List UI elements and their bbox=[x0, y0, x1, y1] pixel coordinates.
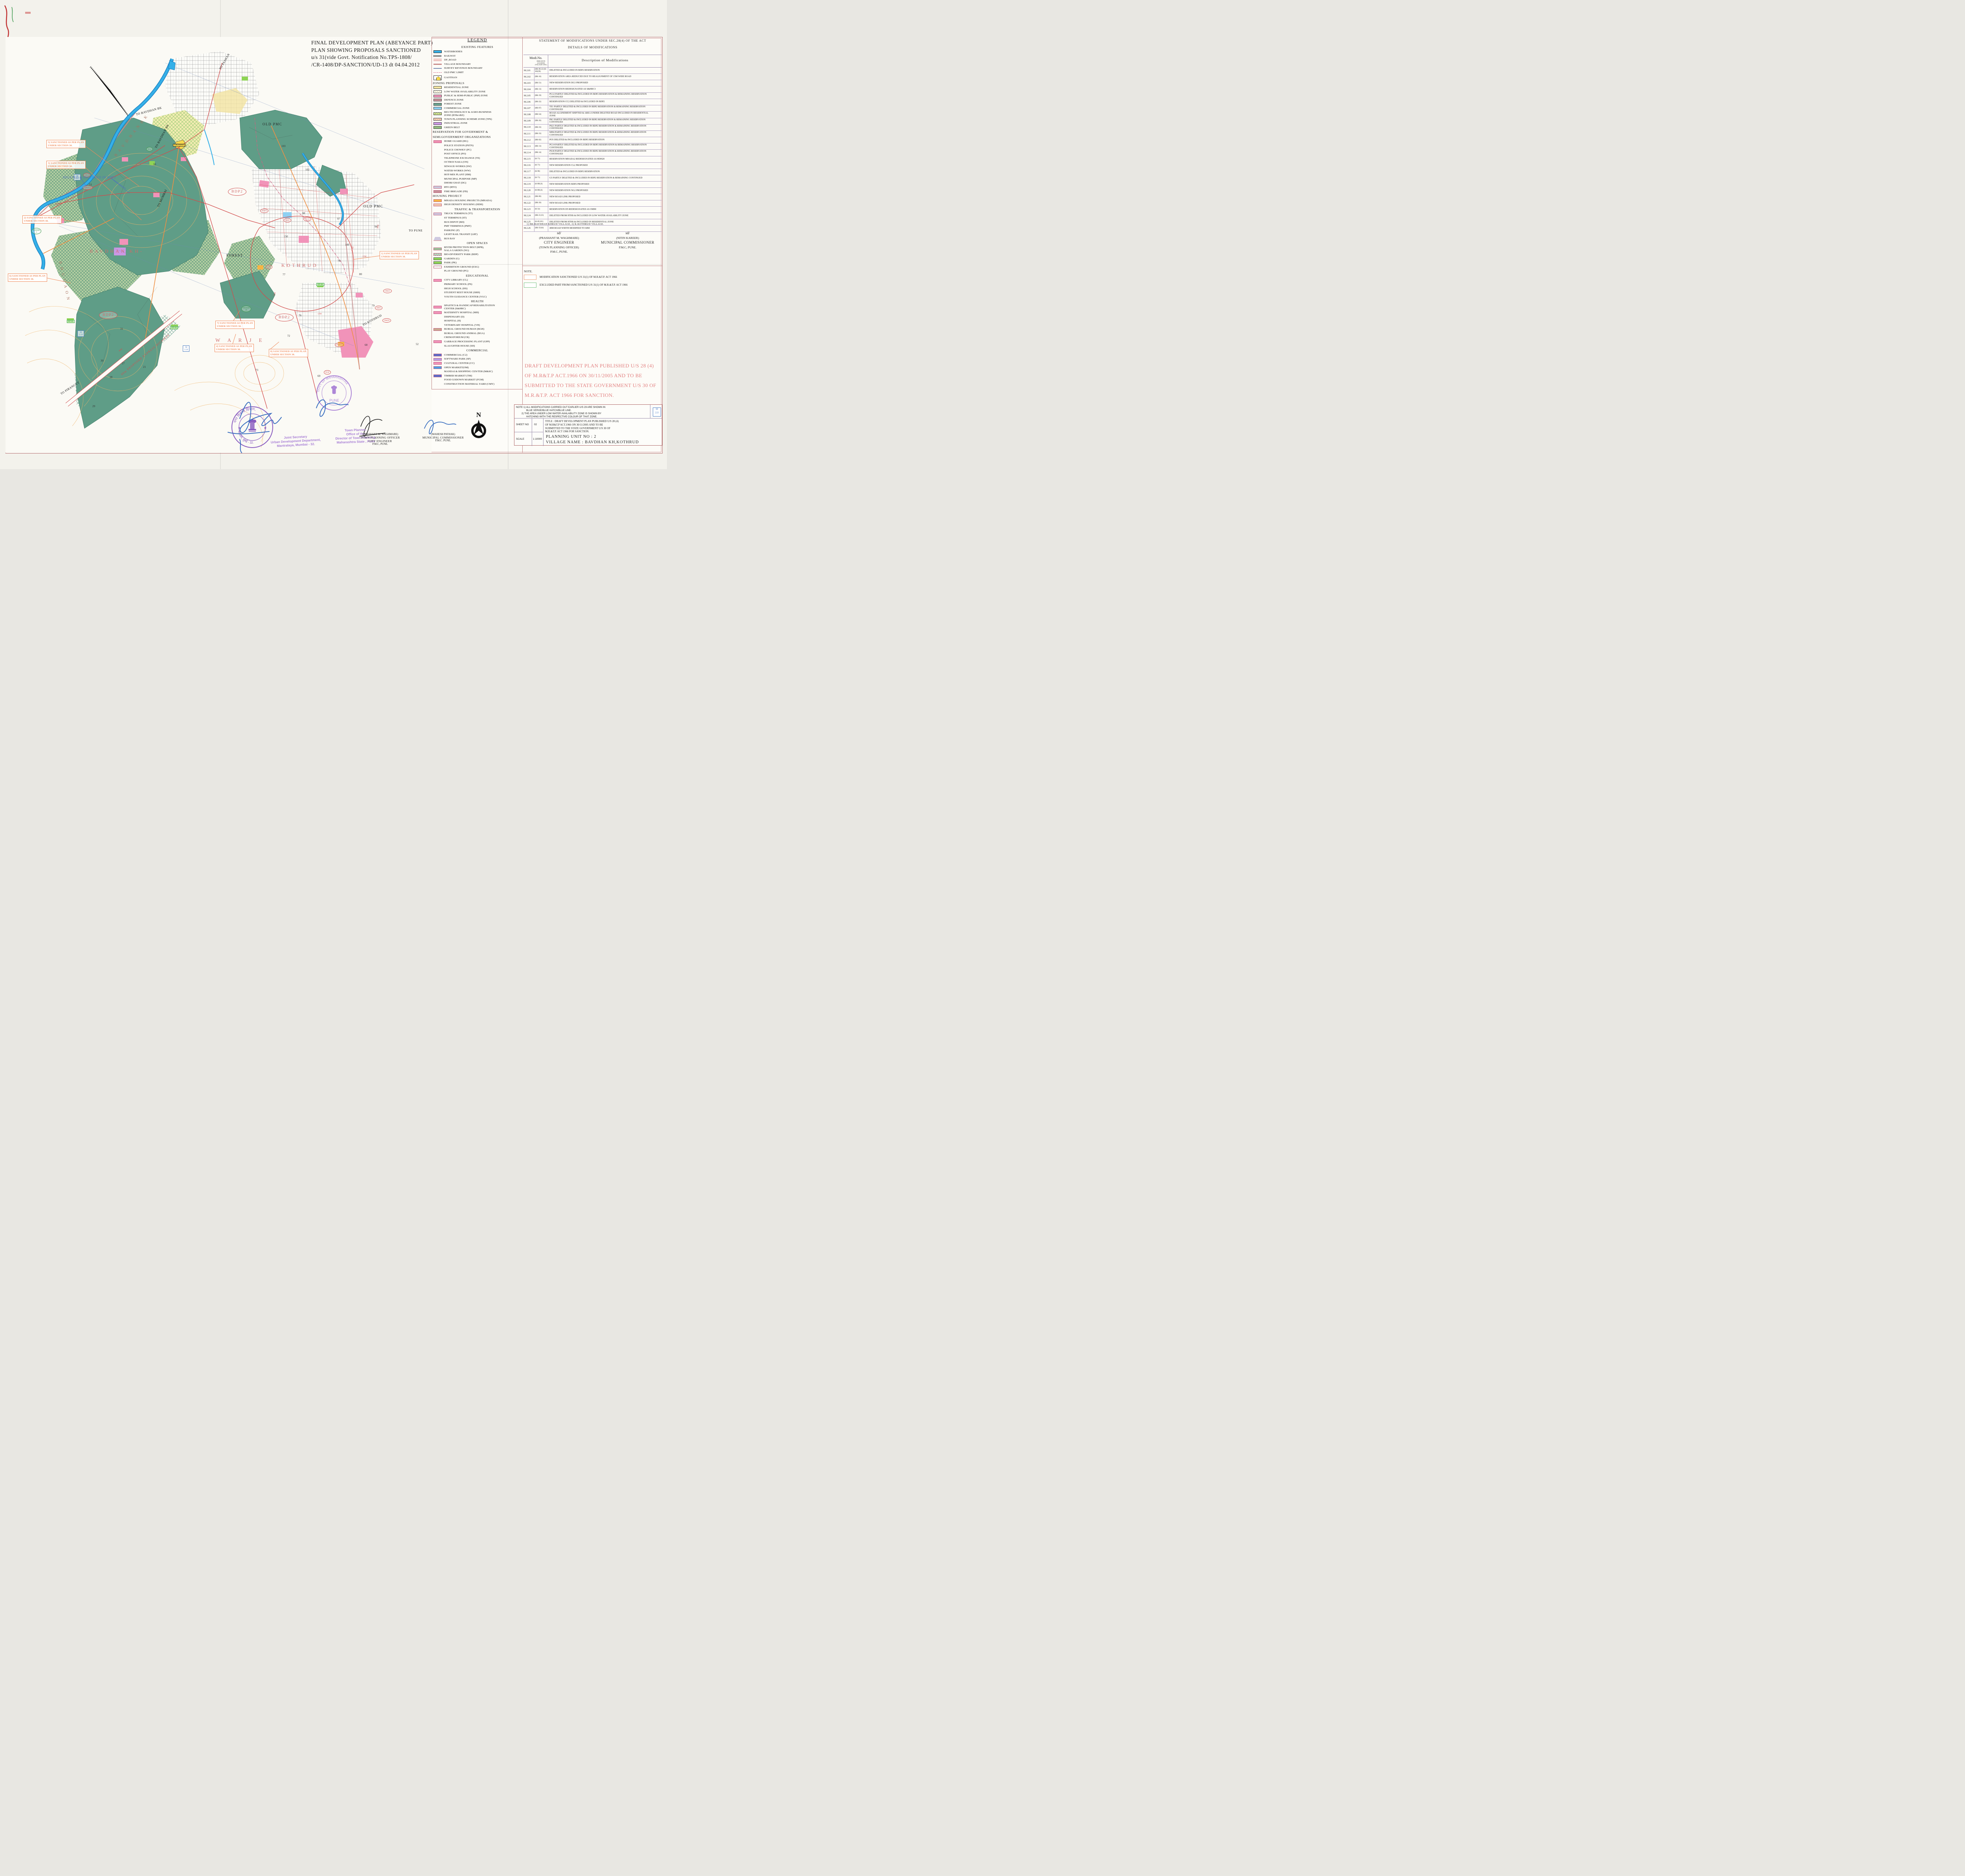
legend-swatch bbox=[433, 204, 442, 206]
modification-no: M.2.10 bbox=[523, 126, 534, 128]
legend-label: TOWN PLANNING SCHEME ZONE (TPS) bbox=[444, 118, 492, 121]
green-code: PH/HDH20 bbox=[241, 306, 251, 312]
legend-label: HEALTH bbox=[471, 300, 483, 303]
modification-row: M.2.15 (K-71) RESERVATION MHADA2 REDESIG… bbox=[523, 156, 662, 163]
modification-location: (BK-19) bbox=[534, 93, 548, 99]
legend-row: GREEN BELT bbox=[433, 125, 522, 130]
map-label: TO PUNE bbox=[409, 229, 422, 232]
legend-row: VILLAGE BOUNDARY bbox=[433, 62, 522, 66]
plot-number: 103 bbox=[281, 145, 286, 148]
legend-row: SPASTICS & HANDICAP REHABILITATION CENTE… bbox=[433, 304, 522, 310]
legend-row: DISPENSARY (D) bbox=[433, 315, 522, 319]
modification-no: M.2.13 bbox=[523, 145, 534, 148]
legend-row: TOWN PLANNING SCHEME ZONE (TPS) bbox=[433, 117, 522, 121]
legend-label: RIVER PROTECTION BELT (RPB), bbox=[444, 246, 484, 249]
modification-location: (K-71) bbox=[534, 175, 548, 181]
modification-description: 40M ROAD WIDTH MODIFIED TO 60M bbox=[548, 227, 662, 230]
legend-label: MUNICIPAL PURPOSE (MP) bbox=[444, 178, 477, 181]
legend-label: FOREST ZONE bbox=[444, 103, 461, 106]
legend-label-2: NALA GARDEN (NG) bbox=[444, 249, 484, 252]
legend-title: LEGEND bbox=[433, 38, 522, 45]
plot-number: 97 bbox=[337, 217, 340, 220]
modification-marker: M2.19 bbox=[77, 330, 84, 337]
plot-number: 27 bbox=[122, 362, 125, 365]
legend-label: BIO-DIVERSITY PARK (BDP) bbox=[444, 253, 478, 256]
legend-row: HIGH SCHOOL (HS) bbox=[433, 286, 522, 291]
modifications-subheading: DETAILS OF MODIFICATIONS bbox=[523, 46, 662, 49]
modification-no: M.2.24 bbox=[523, 215, 534, 217]
note-item: EXCLUDED PART FROM SANCTIONED U/S 31(1) … bbox=[540, 284, 628, 286]
legend-label: DISPENSARY (D) bbox=[444, 316, 465, 319]
legend-row: MUNICIPAL PURPOSE (MP) bbox=[433, 177, 522, 181]
legend-label: PRIMARY SCHOOL (PS) bbox=[444, 283, 472, 286]
legend-label: MANDAI & SHOPPING CEN/TER (M&SC) bbox=[444, 370, 493, 373]
modification-location: (K-96) bbox=[534, 169, 548, 175]
legend-swatch bbox=[433, 86, 442, 89]
planning-unit: PLANNING UNIT NO : 2 bbox=[546, 435, 596, 439]
modification-location: (K-54) bbox=[534, 207, 548, 213]
legend-row: WATERBODIES bbox=[433, 50, 522, 54]
legend-row: PUBLIC & SEMI-PUBLIC (PSP) ZONE bbox=[433, 94, 522, 98]
legend-label: RAILWAY bbox=[444, 55, 456, 58]
legend-label: FIRE BRIGADE (FB) bbox=[444, 190, 468, 193]
modification-no: M.2.05 bbox=[523, 95, 534, 97]
draft-line: SUBMITTED TO THE STATE GOVERNMENT U/S 30… bbox=[525, 380, 662, 390]
modification-row: M.2.21 (BK-06) NEW ROAD LINK PROPOSED bbox=[523, 194, 662, 200]
legend-swatch bbox=[433, 140, 442, 143]
map-label: OLD PMC bbox=[364, 204, 383, 208]
excluded-part-swatch bbox=[524, 283, 536, 288]
modification-location: (K-BK,K) bbox=[534, 182, 548, 187]
legend-label: COMMERCIAL ZONE bbox=[444, 107, 470, 110]
legend-label: SURVEY REVENUE BOUNDARY bbox=[444, 67, 483, 70]
sanction-callout: 4) SANCTIONED AS PER PLANUNDER SECTION 3… bbox=[215, 344, 254, 352]
legend-row: POST OFFICE (PO) bbox=[433, 152, 522, 156]
modification-row: M.2.04 (BK-13) RESERVATION REDESIGNATED … bbox=[523, 86, 662, 93]
legend-label: CREMATORIUM (CR) bbox=[444, 336, 469, 339]
legend-row: RIVER PROTECTION BELT (RPB), NALA GARDEN… bbox=[433, 246, 522, 252]
reservation-code: PMT2 bbox=[335, 343, 343, 347]
legend-label: LIGHT RAIL TRANSIT (LRT) bbox=[444, 233, 477, 236]
modification-location: (BK-16) bbox=[534, 74, 548, 80]
reservation-code: MP6 bbox=[284, 218, 291, 222]
modification-description: NEW RESERVATION DG3 PROPOSED bbox=[548, 81, 662, 85]
legend-swatch bbox=[433, 253, 442, 256]
handwritten-signatures bbox=[204, 389, 472, 456]
reservation-code: OM21 bbox=[383, 289, 392, 293]
legend-label: PARKING (P) bbox=[444, 229, 459, 232]
modification-row: M.2.01 (BK-08,12) (K-100,99) DELETED & I… bbox=[523, 68, 662, 74]
reservation-code: OM20 bbox=[382, 318, 391, 323]
modification-row: M.2.17 (K-96) DELETED & INCLUDED IN BDP2… bbox=[523, 169, 662, 175]
legend-row: LOW WATER AVAILABILITY ZONE bbox=[433, 90, 522, 94]
legend-swatch bbox=[433, 75, 442, 80]
modification-description: NEW RESERVATION NG2 PROPOSED bbox=[548, 189, 662, 193]
legend-label: OPEN MARKET(OM) bbox=[444, 366, 469, 369]
legend-label: MATERNITY HOSPITAL (MH) bbox=[444, 311, 479, 314]
reservation-code: WW1 bbox=[260, 209, 268, 213]
green-code: NG2 bbox=[146, 147, 153, 151]
sheet-no-label: SHEET NO bbox=[516, 423, 529, 426]
modification-description: NEW RESERVATION CL2 PROPOSED bbox=[548, 164, 662, 167]
legend-label: CITY LIBRARY (CL) bbox=[444, 279, 468, 282]
legend-swatch bbox=[433, 55, 442, 57]
modification-description: TE1 PARTLY DELETED & INCLUDED IN BDP2 RE… bbox=[548, 105, 662, 111]
legend-label: LOW WATER AVAILABILITY ZONE bbox=[444, 90, 485, 94]
modification-row: M.2.03 (BK-51) NEW RESERVATION DG3 PROPO… bbox=[523, 80, 662, 86]
legend-label: SLAUGHTER HOUSE (SH) bbox=[444, 345, 475, 348]
legend-row: PARK (PK) bbox=[433, 261, 522, 265]
modification-sanctioned-swatch bbox=[524, 275, 536, 280]
legend-swatch bbox=[433, 362, 442, 365]
legend-row: GARBAGE PROCESSING PLANT (GPP) bbox=[433, 340, 522, 344]
legend-label: PUBLIC & SEMI-PUBLIC (PSP) ZONE bbox=[444, 94, 488, 97]
village-name: VILLAGE NAME : BAVDHAN KH,KOTHRUD bbox=[546, 440, 639, 444]
legend-label: GARDEN (G) bbox=[444, 257, 459, 261]
reservation-code: BDP2 bbox=[99, 311, 118, 319]
legend-row: TELEPHONE EXCHANGE (TE) bbox=[433, 156, 522, 160]
scale-value: 1:10000 bbox=[533, 438, 542, 441]
legend-swatch bbox=[433, 306, 442, 308]
ep-marker: EP-62 bbox=[170, 326, 178, 329]
modification-no: M.2.06 bbox=[523, 101, 534, 103]
reservation-code: BDP2 bbox=[228, 188, 246, 196]
ep-marker: EP-61 bbox=[67, 320, 75, 323]
plot-number: 31 bbox=[120, 327, 123, 330]
plan-title-line: FINAL DEVELOPMENT PLAN (ABEYANCE PART) bbox=[311, 39, 433, 47]
col-indicative-location: INDICATIVE LOCATION bbox=[534, 61, 548, 64]
legend-label: RESIDENTIAL ZONE bbox=[444, 86, 469, 89]
modification-location: (BK-20) bbox=[534, 200, 548, 206]
legend-label: RESERVATION FOR GOVERNMENT & bbox=[433, 130, 488, 134]
approval-right: sd/ (NITIN KAREER) MUNICIPAL COMMISSIONE… bbox=[594, 231, 661, 249]
legend-label-2: ZONE (BT&ABZ) bbox=[444, 114, 491, 117]
legend-swatch bbox=[433, 90, 442, 93]
legend-label: HIGH SCHOOL (HS) bbox=[444, 287, 468, 290]
modification-location: (BK-33) bbox=[534, 125, 548, 130]
sheet-no-value: 02 bbox=[534, 423, 537, 426]
modification-no: M.2.21 bbox=[523, 196, 534, 198]
legend-row: CREMATORIUM (CR) bbox=[433, 336, 522, 340]
legend-row: PRIMARY SCHOOL (PS) bbox=[433, 283, 522, 287]
draft-line: OF M.R&T.P ACT.1966 ON 30/11/2005 AND TO… bbox=[525, 371, 662, 380]
modification-description: PG14 PARTLY DELETED & INCLUDED IN BDP2 R… bbox=[548, 143, 662, 149]
legend-label: SOFTWARE PARK (SP) bbox=[444, 358, 471, 361]
legend-label: BIO-TECHNOLOGY & AGRO-BUSINESS bbox=[444, 111, 491, 114]
legend-label: GAOTHAN bbox=[444, 76, 457, 79]
legend-row: EDUCATIONAL bbox=[433, 273, 522, 278]
modification-row: M.2.22 (BK-20) NEW ROAD LINK PROPOSED bbox=[523, 200, 662, 207]
legend-row: RESERVATION FOR GOVERNMENT & bbox=[433, 130, 522, 135]
modification-description: PG12 PARTLY DELETED & INCLUDED IN BDP2 R… bbox=[548, 93, 662, 99]
modification-row: M.2.18 (K-71) G5 PARTLY DELETED & INCLUD… bbox=[523, 175, 662, 182]
map-label: GAOTHAN bbox=[173, 144, 185, 147]
modifications-table: M.2.01 (BK-08,12) (K-100,99) DELETED & I… bbox=[523, 68, 662, 232]
approver-role: MUNICIPAL COMMISSIONER bbox=[594, 241, 661, 245]
legend-label: TRAFFIC & TRANSPORTATION bbox=[454, 208, 500, 211]
sanction-callout: 7) SANCTIONED AS PER PLANUNDER SECTION 3… bbox=[215, 321, 255, 329]
modification-row: M.2.19 (K-BK,K) NEW RESERVATION BDP2 PRO… bbox=[523, 182, 662, 188]
plan-title: FINAL DEVELOPMENT PLAN (ABEYANCE PART) P… bbox=[311, 39, 433, 68]
legend-swatch bbox=[433, 95, 442, 97]
legend-swatch bbox=[433, 266, 442, 268]
legend-swatch bbox=[433, 328, 442, 331]
legend-label: COMMERCIAL bbox=[466, 349, 488, 352]
legend-swatch bbox=[433, 237, 442, 241]
legend-row: HOUSING PROJECT bbox=[433, 194, 522, 199]
legend-row: FOOD GODOWN MARKET (FGM) bbox=[433, 378, 522, 382]
green-code: PH/HDH3 bbox=[31, 228, 41, 234]
legend-swatch bbox=[433, 213, 442, 215]
modification-description: PS18 PARTLY DELETED & INCLUDED IN BDP2 R… bbox=[548, 150, 662, 156]
legend-swatch bbox=[433, 354, 442, 356]
reservation-code: BDP2 bbox=[275, 314, 294, 321]
panel-divider bbox=[522, 37, 523, 453]
sanction-callout: 3) SANCTIONED AS PER PLANUNDER SECTION 3… bbox=[46, 161, 86, 169]
modification-description: RESERVATION MHADA2 REDESIGNATED AS HDH20 bbox=[548, 158, 662, 161]
legend-label: SPASTICS & HANDICAP REHABILITATION bbox=[444, 304, 495, 307]
legend-row: BIO-DIVERSITY PARK (BDP) bbox=[433, 252, 522, 257]
modification-no: M.2.18 bbox=[523, 177, 534, 179]
draft-statement: DRAFT DEVELOPMENT PLAN PUBLISHED U/S 28 … bbox=[525, 361, 662, 400]
legend-label: HOSPITAL (H) bbox=[444, 319, 461, 323]
legend-row: DEFENCE ZONE bbox=[433, 98, 522, 102]
modification-location: (K-71) bbox=[534, 156, 548, 162]
development-plan-sheet: KOTHRUDBAVDHAN KH-W A R J EB A V D H A N… bbox=[0, 0, 667, 469]
plot-number: 76 bbox=[299, 314, 301, 317]
modifications-footnote: 1) BK-BAVDHAN KHRUD VILLAGE, 2) K-KOTHRU… bbox=[527, 223, 604, 226]
legend-row: POLICE STATION (PSTN) bbox=[433, 144, 522, 148]
plan-title-line: u/s 31(vide Govt. Notification No.TPS-18… bbox=[311, 54, 433, 61]
modification-description: NEW RESERVATION BDP2 PROPOSED bbox=[548, 183, 662, 186]
legend-label: HIGH DENSITY HOUSING (HDH) bbox=[444, 203, 483, 206]
legend-row: PMT TERMINUS (PMT) bbox=[433, 224, 522, 229]
legend-swatch bbox=[433, 107, 442, 110]
legend-row: COMMERCIAL (C2) bbox=[433, 353, 522, 357]
legend-row: MATERNITY HOSPITAL (MH) bbox=[433, 310, 522, 315]
legend-row: SLAUGHTER HOUSE (SH) bbox=[433, 344, 522, 348]
plot-number: 149 bbox=[345, 243, 349, 246]
legend-left-border bbox=[432, 37, 432, 389]
modification-row: M.2.23 (K-54) RESERVATION D5 REDESIGNATE… bbox=[523, 207, 662, 213]
approver-org: P.M.C, PUNE. bbox=[527, 250, 591, 253]
legend-label: HOUSING PROJECT bbox=[433, 195, 462, 198]
map-label: KOTHRUD bbox=[281, 262, 318, 268]
plot-number: 21 bbox=[143, 365, 146, 369]
legend-row: SEWAGE-WORKS (SW) bbox=[433, 164, 522, 169]
plot-number: 30 bbox=[101, 359, 103, 362]
approver-role: CITY ENGINEER bbox=[527, 241, 591, 245]
sanction-callout: 6) SANCTIONED AS PER PLANUNDER SECTION 3… bbox=[8, 274, 47, 282]
legend-row: HEALTH bbox=[433, 299, 522, 304]
legend-label: VILLAGE BOUNDARY bbox=[444, 63, 471, 66]
legend-swatch bbox=[433, 50, 442, 53]
legend-row: SURVEY REVENUE BOUNDARY bbox=[433, 66, 522, 71]
sanction-callout: 1) SANCTIONED AS PER PLANUNDER SECTION 3… bbox=[380, 251, 419, 259]
legend-label: BUS DEPOT (BD) bbox=[444, 221, 465, 224]
modification-description: RESERVATION D5 REDESIGNATED AS OM90 bbox=[548, 208, 662, 211]
legend-label: EXHIBITION GROUND (EXG) bbox=[444, 266, 479, 269]
scale-label: SCALE bbox=[516, 438, 524, 441]
legend-row: COMMERCIAL ZONE bbox=[433, 106, 522, 111]
modification-no: M.2.11 bbox=[523, 133, 534, 135]
legend-label: GREEN BELT bbox=[444, 126, 460, 129]
modification-location: (BK-14) bbox=[534, 150, 548, 156]
modification-row: M.2.20 (K-BK,K) NEW RESERVATION NG2 PROP… bbox=[523, 188, 662, 194]
legend-label: SEMI.GOVERNMENT ORGANIZATIONS bbox=[433, 136, 491, 139]
road-width-label: 12M bbox=[124, 177, 128, 179]
legend-label: INDUSTRIAL ZONE bbox=[444, 122, 467, 125]
modification-description: PK1 PARTLY DELETED & INCLUDED IN BDP2 RE… bbox=[548, 118, 662, 124]
legend-label: PLAY GROUND (PG) bbox=[444, 270, 468, 273]
deleted-note: DELETED & INCLUDED IN BDP2 bbox=[63, 176, 116, 179]
modification-row: M.2.11 (BK-33) MH4 PARTLY DELETED & INCL… bbox=[523, 131, 662, 137]
map-label: OLD PMC bbox=[263, 122, 282, 126]
modification-no: M.2.14 bbox=[523, 152, 534, 154]
sd-mark: sd/ bbox=[527, 231, 591, 235]
legend-row: SEMI.GOVERNMENT ORGANIZATIONS bbox=[433, 134, 522, 140]
legend-label: OPEN SPACES bbox=[467, 242, 488, 245]
modification-location: (K-BK,K) bbox=[534, 188, 548, 194]
modification-description: NEW ROAD LINK PROPOSED bbox=[548, 195, 662, 199]
panel-rule bbox=[522, 266, 663, 266]
legend-label: BURIAL GROUND ANIMAL (BGA) bbox=[444, 332, 485, 335]
col-village-sno: (VILLAGE-S.NO.) bbox=[534, 64, 548, 66]
legend-row: TRUCK TERMINUS (TT) bbox=[433, 212, 522, 216]
legend-row: OCTROI NAKA (ON) bbox=[433, 160, 522, 165]
reservation-code: PC13 bbox=[303, 217, 311, 221]
modification-location: (BK-59,64) bbox=[534, 226, 548, 231]
modification-row: M.2.02 (BK-16) RESERVATION AREA REDUCED … bbox=[523, 74, 662, 80]
sanction-callout: 8) SANCTIONED AS PER PLANUNDER SECTION 3… bbox=[269, 349, 308, 357]
modification-row: M.2.24 (BK-23,35) DELETED FROM HTHS & IN… bbox=[523, 213, 662, 219]
plot-number: 28 bbox=[110, 376, 112, 379]
legend-label: DHOBI GHAT (DG) bbox=[444, 182, 466, 185]
legend-row: GARDEN (G) bbox=[433, 257, 522, 261]
legend-row: HOT-MIX PLANT (HM) bbox=[433, 173, 522, 177]
modification-description: RESERVATION AREA REDUCED DUE TO REALIGNM… bbox=[548, 75, 662, 79]
legend-row: EXHIBITION GROUND (EXG) bbox=[433, 265, 522, 269]
plot-number: 77 bbox=[283, 273, 285, 276]
legend-swatch bbox=[433, 311, 442, 314]
modification-description: RESERVATION CC2 DELETED & INCLUDED IN BD… bbox=[548, 100, 662, 104]
legend-label: POLICE STATION (PSTN) bbox=[444, 144, 474, 147]
plot-number: 78 bbox=[338, 259, 340, 262]
legend-row: STUDENT REST HOUSE (SRH) bbox=[433, 291, 522, 295]
modification-no: M.2.12 bbox=[523, 139, 534, 141]
legend-row: HOSPITAL (H) bbox=[433, 319, 522, 323]
legend-row: LIGHT RAIL TRANSIT (LRT) bbox=[433, 233, 522, 237]
plot-number: 80 bbox=[359, 273, 362, 276]
modification-location: (K-71) bbox=[534, 163, 548, 169]
sd-mark: sd/ bbox=[594, 231, 661, 235]
road-width-label: 12M bbox=[318, 313, 321, 315]
legend-swatch bbox=[433, 99, 442, 101]
legend-label: ST TERMINUS (ST) bbox=[444, 217, 466, 220]
legend-row: FOREST ZONE bbox=[433, 102, 522, 106]
legend-label: BUS BAY bbox=[444, 237, 455, 240]
legend-row: VETERINARY HOSPITAL (VH) bbox=[433, 323, 522, 327]
legend-swatch bbox=[433, 59, 442, 61]
modifications-table-header: Modi.No. INDICATIVE LOCATION (VILLAGE-S.… bbox=[523, 55, 662, 68]
legend-row: BUS BAY bbox=[433, 237, 522, 241]
note-heading: NOTE. bbox=[524, 270, 661, 273]
legend-label: RTO (RTO) bbox=[444, 186, 457, 189]
legend-row: RAILWAY bbox=[433, 54, 522, 58]
officer1-block: (PRASHANT M. WAGHMARE) TOWN PLANNING OFF… bbox=[354, 433, 407, 446]
modification-no: M.2.23 bbox=[523, 208, 534, 211]
legend-label: COMMERCIAL (C2) bbox=[444, 354, 467, 357]
sheet-note-1b: BLUE VERGE/BLUE HATCH/BLUE LINE. bbox=[516, 409, 646, 412]
modification-location: (BK-08,12) (K-100,99) bbox=[534, 68, 548, 73]
modification-location: (BK-67) bbox=[534, 105, 548, 111]
legend-label: GARBAGE PROCESSING PLANT (GPP) bbox=[444, 340, 490, 343]
legend-row: BURIAL GROUND ANIMAL (BGA) bbox=[433, 331, 522, 336]
legend-row: YOUTH GUIDANCE CENTER (YGC) bbox=[433, 295, 522, 299]
modification-no: M.2.08 bbox=[523, 114, 534, 116]
modification-location: (BK-54) bbox=[534, 112, 548, 117]
legend: LEGEND EXISTING FEATURES WATERBODIES bbox=[433, 38, 522, 386]
plot-number: 73 bbox=[255, 369, 258, 372]
legend-row: ZONING PROPOSALS bbox=[433, 81, 522, 86]
legend-row: BUS DEPOT (BD) bbox=[433, 220, 522, 224]
legend-swatch bbox=[433, 72, 442, 73]
draft-line: DRAFT DEVELOPMENT PLAN PUBLISHED U/S 28 … bbox=[525, 361, 662, 371]
legend-label: PARK (PK) bbox=[444, 261, 457, 264]
modification-row: M.2.06 (BK-22) RESERVATION CC2 DELETED &… bbox=[523, 99, 662, 105]
modification-no: M.2.09 bbox=[523, 120, 534, 122]
modification-row: M.2.07 (BK-67) TE1 PARTLY DELETED & INCL… bbox=[523, 105, 662, 112]
modification-no: M.2.26 bbox=[523, 227, 534, 229]
legend-label: WATER-WORKS (WW) bbox=[444, 169, 470, 173]
legend-label: MHADA HOUSING PROJECTS (MHADA) bbox=[444, 199, 492, 202]
legend-label: TRUCK TERMINUS (TT) bbox=[444, 212, 473, 215]
modification-location: (BK-06) bbox=[534, 194, 548, 200]
sheet-title-text: TITLE : DRAFT DEVELOPMENT PLAN PUBLISHED… bbox=[545, 420, 661, 434]
modification-no: M.2.01 bbox=[523, 70, 534, 72]
modification-no: M.2.17 bbox=[523, 171, 534, 173]
legend-row: GAOTHAN bbox=[433, 75, 522, 81]
modification-row: M.2.14 (BK-14) PS18 PARTLY DELETED & INC… bbox=[523, 150, 662, 156]
legend-label: EXISTING FEATURES bbox=[461, 46, 493, 49]
legend-row: OLD PMC LIMIT bbox=[433, 70, 522, 75]
legend-swatch bbox=[433, 358, 442, 361]
modification-description: NEW ROAD LINK PROPOSED bbox=[548, 202, 662, 205]
legend-row: TIMBER MARKET (TM) bbox=[433, 374, 522, 378]
legend-swatch bbox=[433, 126, 442, 129]
plot-number: 29 bbox=[92, 405, 95, 408]
modification-location: (BK-22) bbox=[534, 99, 548, 105]
legend-label: TELEPHONE EXCHANGE (TE) bbox=[444, 157, 480, 160]
modification-row: M.2.16 (K-71) NEW RESERVATION CL2 PROPOS… bbox=[523, 163, 662, 169]
plot-number: 56 bbox=[153, 163, 156, 166]
sheet-note-2b: HATCHING WITH THE RESPECTIVE COLOUR OF T… bbox=[516, 415, 646, 419]
modification-location: (BK-26) bbox=[534, 118, 548, 124]
sanction-callout: 5) SANCTIONED AS PER PLANUNDER SECTION 3… bbox=[46, 140, 86, 148]
legend-swatch bbox=[433, 68, 442, 69]
officer2-block: (MAHESH PATHAK) MUNICIPAL COMMISSIONER P… bbox=[417, 433, 470, 442]
legend-row: RESIDENTIAL ZONE bbox=[433, 86, 522, 90]
legend-row: HIGH DENSITY HOUSING (HDH) bbox=[433, 203, 522, 207]
modification-row: M.2.13 (BK-13) PG14 PARTLY DELETED & INC… bbox=[523, 143, 662, 150]
modification-row: M.2.12 (BK-02) PO5 DELETED & INCLUDED IN… bbox=[523, 137, 662, 143]
modification-no: M.2.15 bbox=[523, 158, 534, 160]
legend-row: SOFTWARE PARK (SP) bbox=[433, 357, 522, 362]
modification-row: M.2.08 (BK-54) ROAD ALGINEMENT SHIFTED &… bbox=[523, 112, 662, 118]
legend-swatch bbox=[433, 186, 442, 189]
legend-swatch bbox=[433, 279, 442, 282]
modification-location: (BK-13) bbox=[534, 143, 548, 149]
